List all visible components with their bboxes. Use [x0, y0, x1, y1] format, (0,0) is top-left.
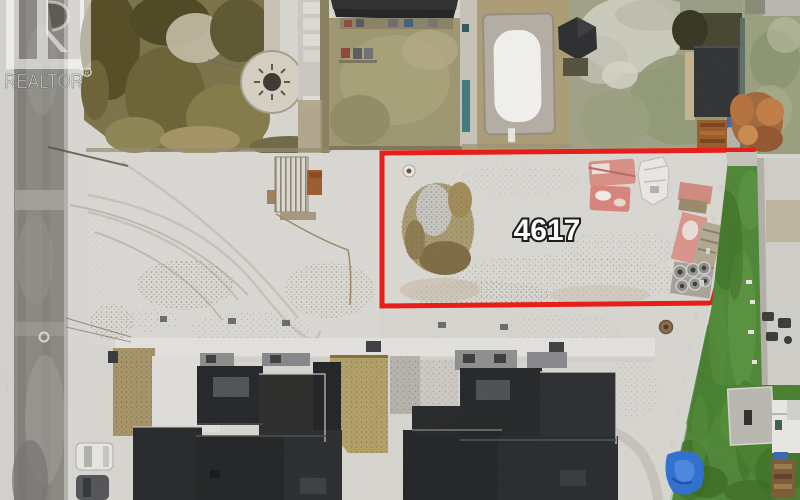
svg-text:REALTOR: REALTOR [4, 71, 83, 93]
svg-text:R: R [85, 71, 90, 77]
